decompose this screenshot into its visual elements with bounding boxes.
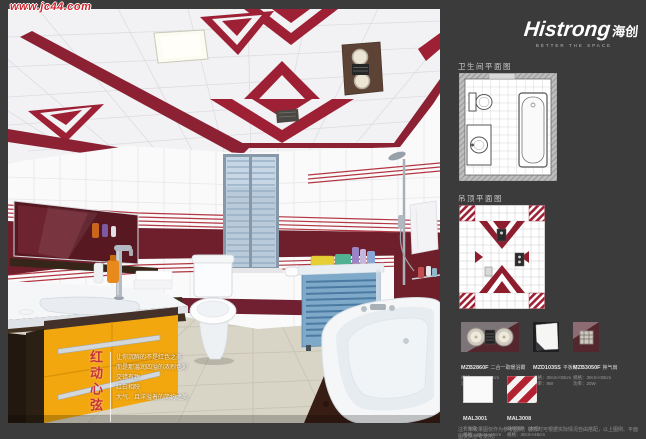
product-code: MAL3008: [507, 416, 531, 422]
product-code: MZD1035S: [533, 365, 561, 371]
product-label: MZB3050F换气扇 规格：30cm×30cm 功率：20W: [573, 355, 618, 386]
brand-logo-cn: 海创: [611, 21, 639, 40]
slogan-block: 红动心弦 让你沉醉的不是红色之美 而是那温润四溢的浓烈色彩 交错有致 红白相映 …: [86, 350, 188, 422]
footnote: 注：本效果图仅作为参考图例，装修时可根据实际情况自由搭配，以上图例、平面图仅供参…: [458, 427, 642, 439]
sink-basin: [40, 297, 140, 315]
product-swatch-heater: [461, 322, 519, 352]
product-swatch-vent-fan: [573, 322, 599, 352]
floorplan-title: 卫生间平面图: [458, 61, 512, 72]
brand-logo: Histrong 海创 BETTER THE SPACE: [524, 18, 638, 48]
floorplan-vanity: [467, 125, 491, 165]
product-spec: 功率：20W: [573, 381, 618, 387]
slogan-divider: [110, 352, 111, 422]
slogan-line: 交错有致: [116, 373, 188, 383]
product-spec: 功率：8W: [533, 381, 578, 387]
ceiling-plan-title: 吊顶平面图: [458, 193, 503, 204]
slogan-line: 让你沉醉的不是红色之美: [116, 353, 188, 363]
slogan-line: 大气、且洋溢着的简约之美: [116, 393, 188, 403]
product-swatch-panel-light: [533, 322, 559, 352]
toilet-paper-holder: [285, 267, 299, 276]
bath-heater-unit: [342, 42, 383, 95]
product-code: MAL3001: [463, 416, 487, 422]
slogan-vertical-text: 红动心弦: [86, 350, 105, 422]
bathroom-render-art: [8, 9, 440, 423]
product-spec: 规格：30cm×30cm: [573, 375, 618, 381]
product-code: MZB2860F: [461, 365, 489, 371]
floorplan-bathtub: [519, 93, 547, 167]
product-name: 二合一取暖浴霸: [491, 365, 526, 371]
brand-tagline: BETTER THE SPACE: [524, 43, 612, 48]
towel-rail: [410, 201, 438, 254]
ceiling-panel-light: [154, 30, 208, 63]
product-code: MZB3050F: [573, 365, 601, 371]
product-swatch-red-stripe-tile: [507, 376, 537, 403]
ceiling-plan-diagram: [459, 205, 545, 309]
bathroom-render: 红动心弦 让你沉醉的不是红色之美 而是那温润四溢的浓烈色彩 交错有致 红白相映 …: [8, 9, 440, 423]
product-name: 换气扇: [603, 365, 618, 371]
brand-logo-en: Histrong: [522, 18, 611, 42]
bathtub: [322, 297, 440, 423]
slogan-lines: 让你沉醉的不是红色之美 而是那温润四溢的浓烈色彩 交错有致 红白相映 大气、且洋…: [116, 350, 188, 403]
product-spec: 规格：30cm×30cm: [533, 375, 578, 381]
floorplan-toilet: [469, 93, 492, 111]
floorplan-door: [489, 74, 515, 80]
watermark-text: www.jc44.com: [10, 1, 91, 13]
ceiling-vent: [276, 109, 299, 123]
brochure-page: 红动心弦 让你沉醉的不是红色之美 而是那温润四溢的浓烈色彩 交错有致 红白相映 …: [0, 0, 646, 439]
floorplan-diagram: [459, 73, 557, 181]
product-swatch-white-tile: [463, 376, 493, 403]
product-label: MZD1035S平板灯 规格：30cm×30cm 功率：8W: [533, 355, 578, 386]
info-panel: Histrong 海创 BETTER THE SPACE 卫生间平面图: [447, 0, 646, 439]
slogan-line: 而是那温润四溢的浓烈色彩: [116, 363, 188, 373]
slogan-line: 红白相映: [116, 383, 188, 393]
